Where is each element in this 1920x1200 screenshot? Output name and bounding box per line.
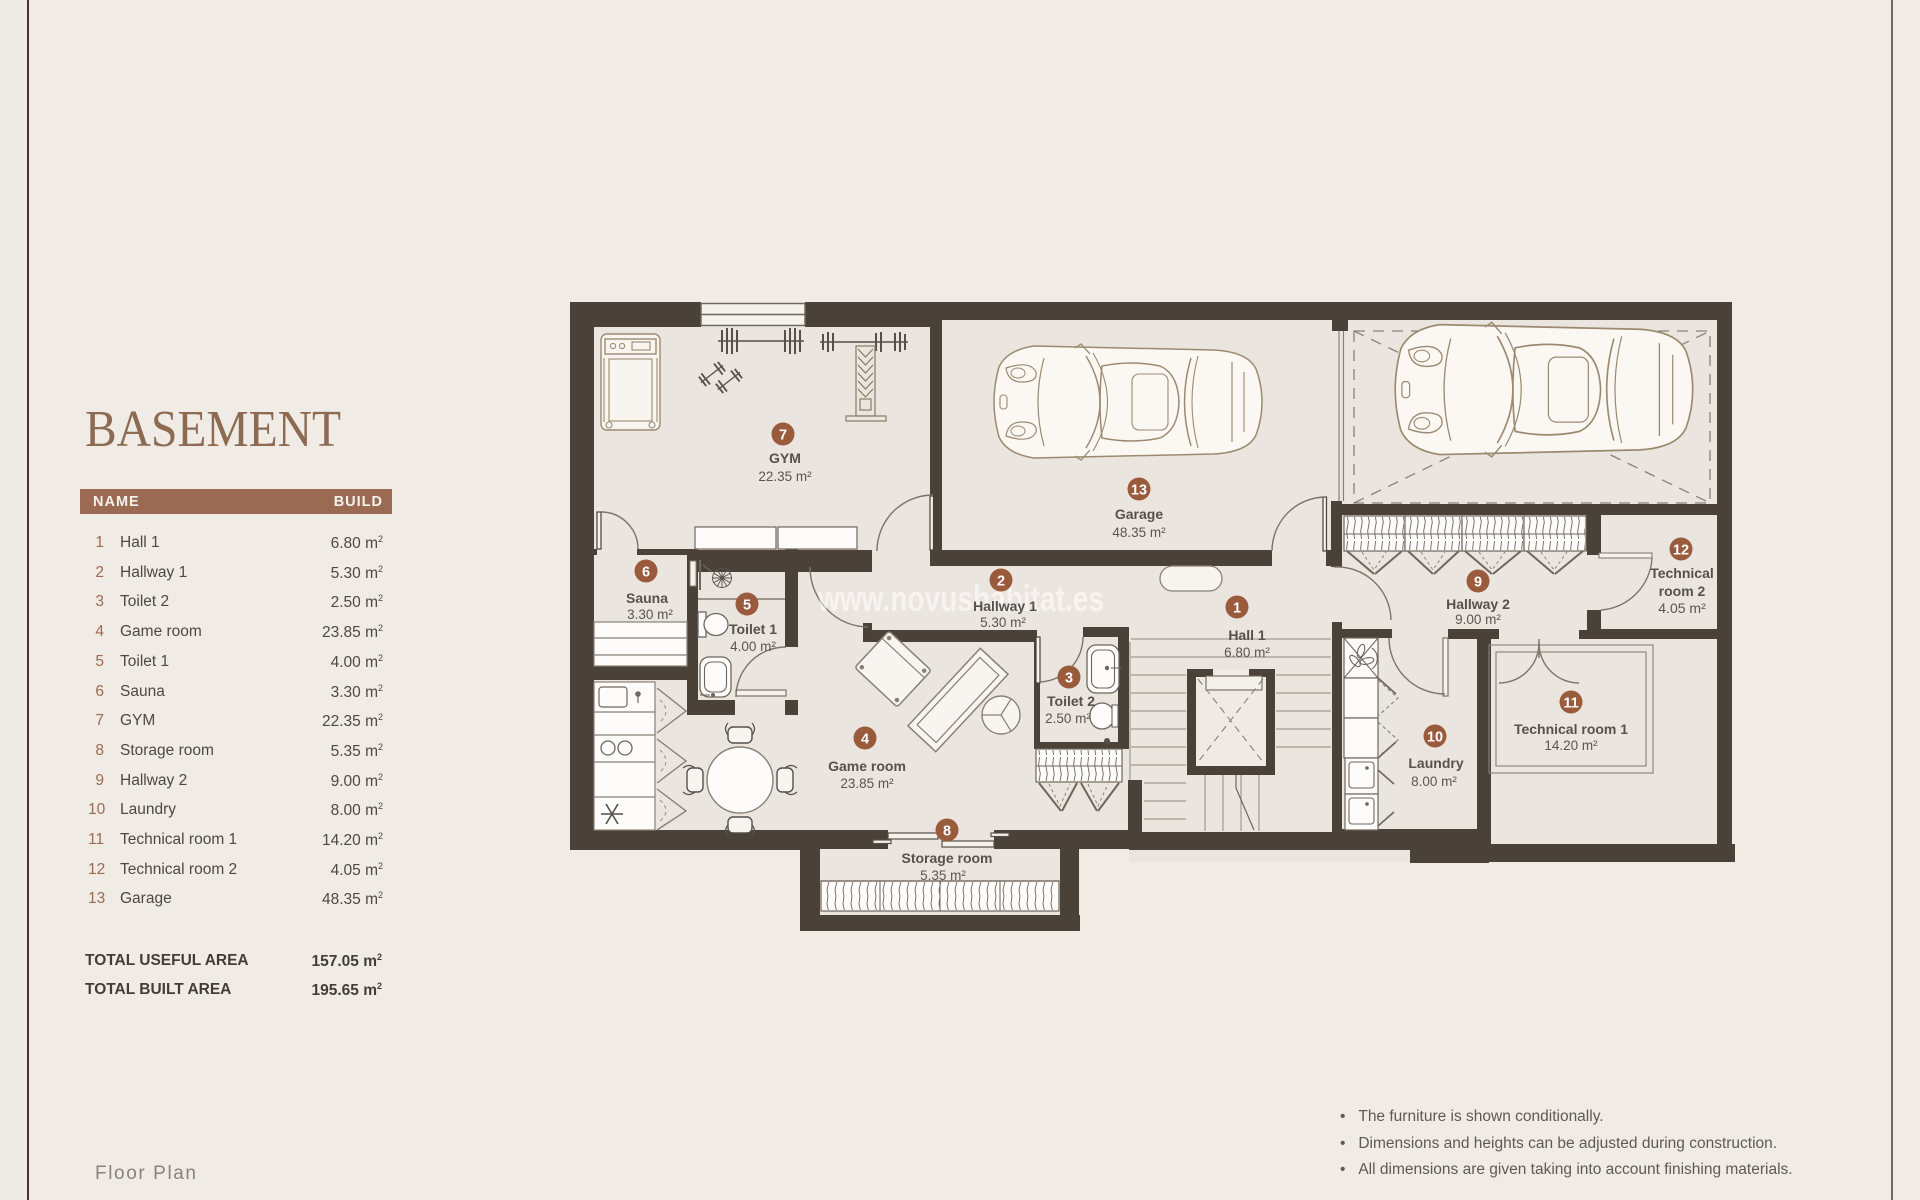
svg-text:Technical: Technical — [1650, 565, 1714, 581]
svg-text:7: 7 — [779, 427, 787, 443]
svg-text:23.85 m²: 23.85 m² — [840, 776, 894, 791]
svg-text:12: 12 — [1673, 542, 1689, 558]
svg-text:8: 8 — [943, 823, 951, 839]
svg-text:Storage room: Storage room — [901, 850, 992, 866]
svg-text:4.05 m²: 4.05 m² — [1658, 600, 1706, 616]
svg-text:Game room: Game room — [828, 758, 906, 774]
svg-text:Hallway 1: Hallway 1 — [973, 598, 1037, 614]
svg-text:Hallway 2: Hallway 2 — [1446, 596, 1510, 612]
svg-text:48.35 m²: 48.35 m² — [1112, 525, 1166, 540]
svg-text:10: 10 — [1427, 729, 1443, 745]
svg-text:Technical room 1: Technical room 1 — [1514, 721, 1628, 737]
svg-text:2: 2 — [997, 573, 1005, 589]
svg-text:2.50 m²: 2.50 m² — [1045, 711, 1091, 726]
svg-text:GYM: GYM — [769, 450, 801, 466]
svg-text:4: 4 — [861, 731, 869, 747]
svg-text:3: 3 — [1065, 670, 1073, 686]
svg-text:3.30 m²: 3.30 m² — [627, 607, 673, 622]
svg-text:5.35 m²: 5.35 m² — [920, 868, 966, 883]
svg-text:13: 13 — [1131, 482, 1147, 498]
svg-text:5.30 m²: 5.30 m² — [980, 615, 1026, 630]
svg-text:room 2: room 2 — [1659, 583, 1706, 599]
svg-text:Sauna: Sauna — [626, 590, 668, 606]
svg-text:8.00 m²: 8.00 m² — [1411, 774, 1457, 789]
svg-text:Toilet 1: Toilet 1 — [729, 621, 777, 637]
svg-text:Garage: Garage — [1115, 506, 1163, 522]
svg-text:www.novushabitat.es: www.novushabitat.es — [817, 578, 1104, 619]
svg-text:14.20 m²: 14.20 m² — [1544, 738, 1598, 753]
svg-text:9: 9 — [1474, 574, 1482, 590]
svg-text:9.00 m²: 9.00 m² — [1455, 612, 1501, 627]
svg-text:Toilet 2: Toilet 2 — [1047, 693, 1095, 709]
svg-text:22.35 m²: 22.35 m² — [758, 469, 812, 484]
svg-text:Laundry: Laundry — [1408, 755, 1463, 771]
svg-text:11: 11 — [1563, 695, 1578, 711]
svg-text:1: 1 — [1233, 600, 1241, 616]
svg-text:6: 6 — [642, 564, 650, 580]
svg-text:4.00 m²: 4.00 m² — [730, 639, 776, 654]
svg-text:5: 5 — [743, 597, 751, 613]
svg-text:Hall 1: Hall 1 — [1228, 627, 1266, 643]
svg-text:6.80 m²: 6.80 m² — [1224, 645, 1270, 660]
